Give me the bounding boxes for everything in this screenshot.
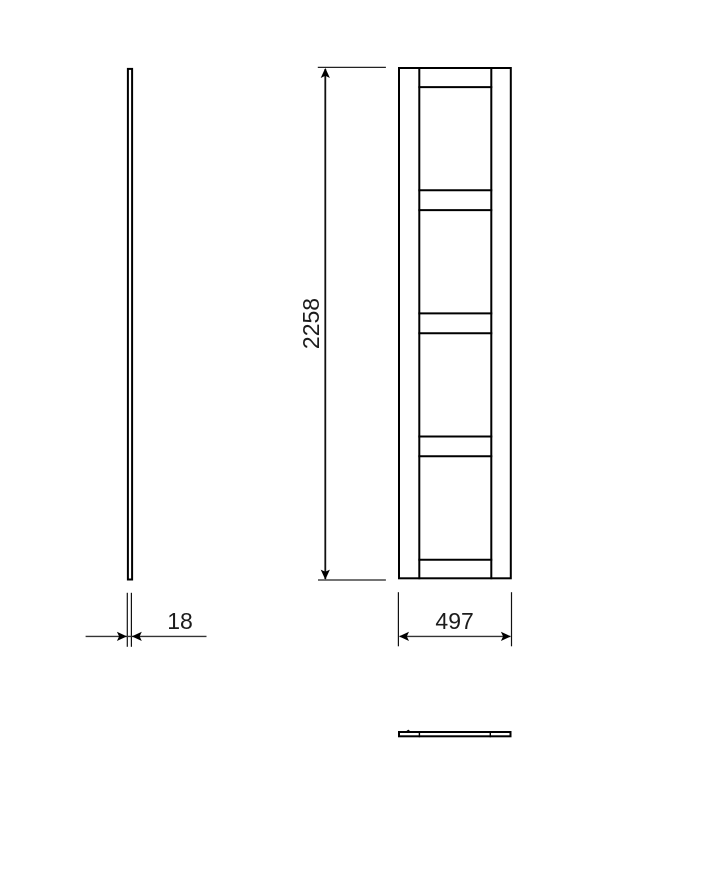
svg-text:497: 497 [435,608,473,634]
svg-text:2258: 2258 [298,298,324,349]
svg-text:18: 18 [167,608,193,634]
